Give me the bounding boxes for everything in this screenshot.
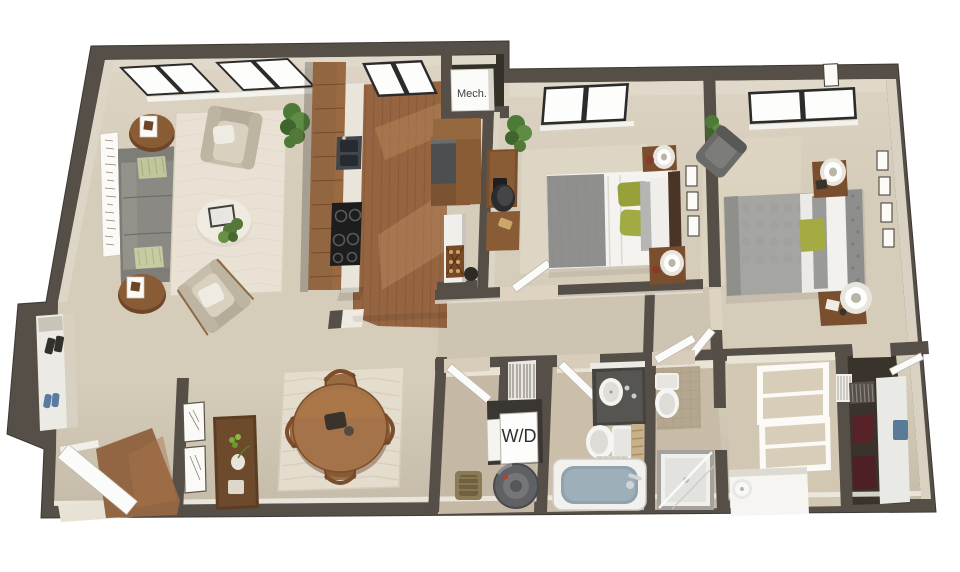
svg-text:Mech.: Mech. <box>457 88 487 100</box>
svg-text:W/D: W/D <box>502 426 537 446</box>
